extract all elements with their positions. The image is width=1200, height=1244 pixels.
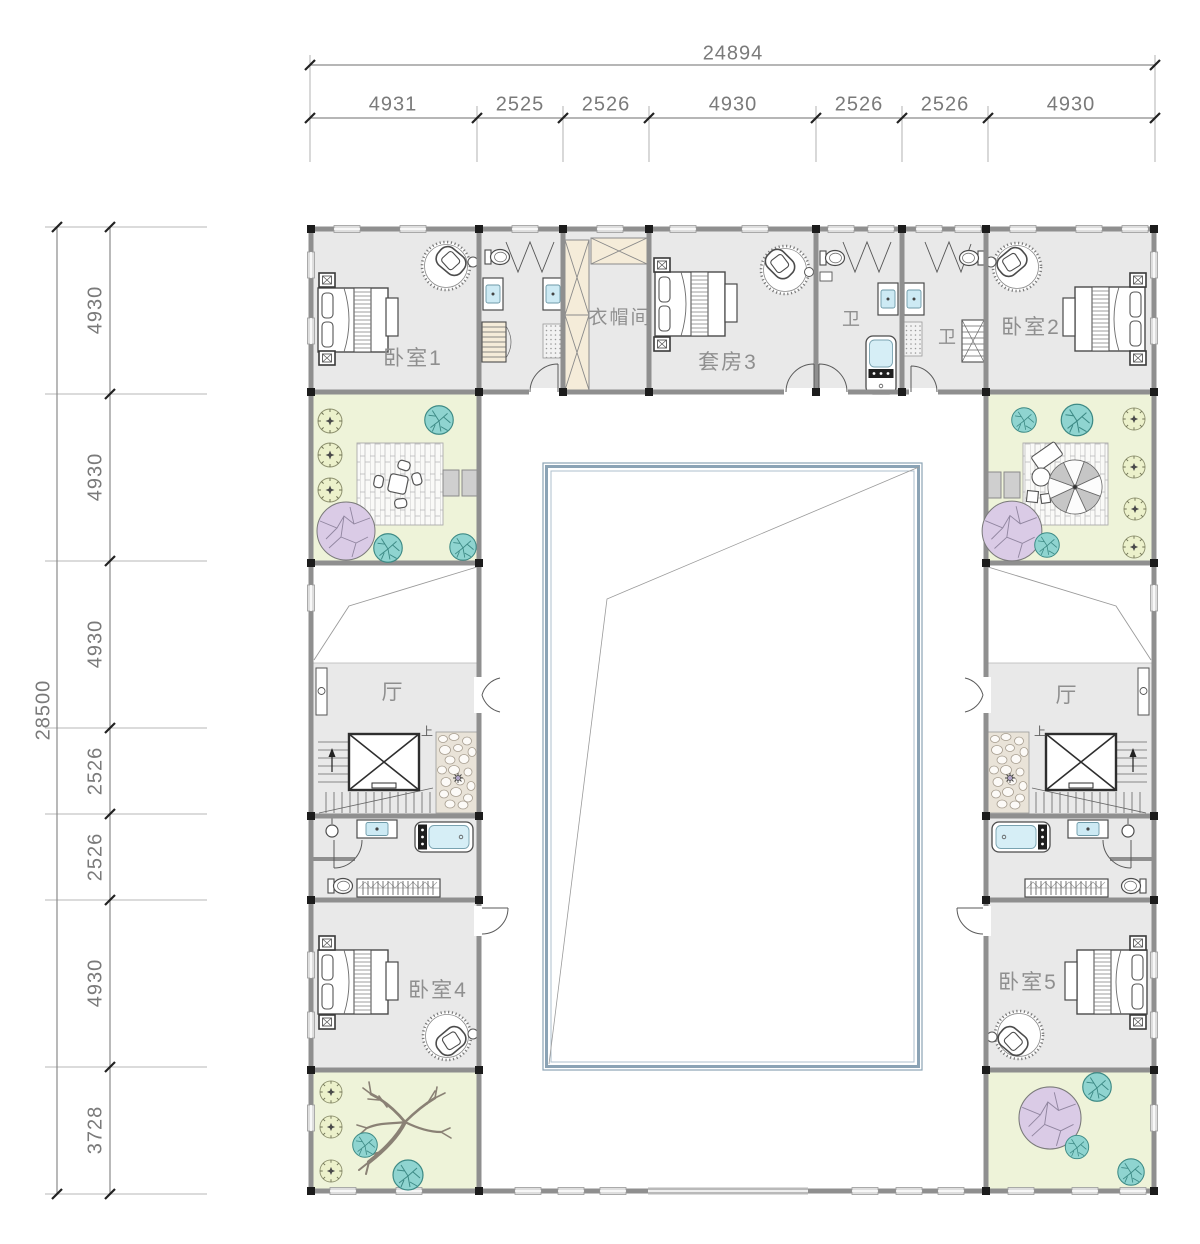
- nightstand: [319, 273, 335, 287]
- bathtub: [415, 822, 473, 852]
- room-label-hall-left: 厅: [382, 676, 405, 706]
- toilet: [820, 251, 845, 266]
- dim-top-seg-6: 2526: [921, 94, 970, 117]
- wardrobe-hangers: [1025, 879, 1108, 897]
- wall-shelf: [820, 272, 832, 281]
- room-label-bath1: 卫: [842, 305, 860, 331]
- bathtub: [992, 822, 1050, 852]
- double-bed: [655, 272, 725, 336]
- dim-left-seg-4: 2526: [85, 747, 108, 796]
- bed-bench: [386, 962, 398, 1000]
- nightstand: [1130, 273, 1146, 287]
- wardrobe-hangers: [357, 879, 440, 897]
- bathtub: [866, 336, 896, 394]
- bed-bench: [386, 298, 398, 336]
- room-label-bedroom2: 卧室2: [1001, 311, 1061, 341]
- sink: [878, 283, 898, 315]
- courtyard-pool: [543, 463, 922, 1070]
- sink: [904, 283, 924, 315]
- dim-left-seg-1: 4930: [85, 286, 108, 335]
- sink: [543, 278, 563, 310]
- dim-top-total: 24894: [703, 43, 764, 66]
- nightstand: [1130, 1015, 1146, 1029]
- dim-left-seg-6: 4930: [85, 959, 108, 1008]
- side-table: [805, 268, 814, 277]
- dim-left-seg-7: 3728: [85, 1106, 108, 1155]
- shower-drain: [326, 825, 338, 837]
- nightstand: [319, 936, 335, 950]
- double-bed: [1077, 950, 1147, 1014]
- dim-top-seg-5: 2526: [835, 94, 884, 117]
- room-label-cloakroom: 衣帽间: [588, 303, 651, 330]
- room-label-bedroom4: 卧室4: [408, 974, 468, 1004]
- sink: [483, 278, 503, 310]
- dim-top-seg-7: 4930: [1047, 94, 1096, 117]
- nightstand: [1130, 351, 1146, 365]
- nightstand: [654, 337, 670, 351]
- toilet: [1122, 879, 1147, 894]
- dim-top-seg-3: 2526: [582, 94, 631, 117]
- bed-bench: [1065, 962, 1077, 1000]
- sink: [357, 820, 397, 838]
- room-label-bedroom1: 卧室1: [383, 342, 443, 372]
- stair-up-label-right: 上: [1034, 723, 1046, 740]
- room-label-hall-right: 厅: [1056, 679, 1079, 709]
- toilet: [328, 879, 353, 894]
- planter-box: [1004, 472, 1020, 498]
- shower-drain: [1122, 825, 1134, 837]
- dim-left-total: 28500: [33, 680, 56, 741]
- room-label-suite3: 套房3: [698, 346, 758, 376]
- dim-top-seg-2: 2525: [496, 94, 545, 117]
- bed-bench: [725, 284, 737, 322]
- pebble-garden: [988, 732, 1029, 813]
- floor-plan-drawing: [0, 0, 1200, 1244]
- dim-left-seg-2: 4930: [85, 453, 108, 502]
- dim-top-seg-4: 4930: [709, 94, 758, 117]
- nightstand: [654, 258, 670, 272]
- nightstand: [319, 1015, 335, 1029]
- double-bed: [318, 950, 388, 1014]
- dim-left-seg-3: 4930: [85, 620, 108, 669]
- pebble-garden: [436, 732, 477, 813]
- stair-up-label-left: 上: [421, 723, 433, 740]
- bed-bench: [1063, 298, 1075, 336]
- room-label-bedroom5: 卧室5: [998, 966, 1058, 996]
- dim-left-seg-5: 2526: [85, 833, 108, 882]
- dim-top-seg-1: 4931: [369, 94, 418, 117]
- nightstand: [1130, 936, 1146, 950]
- room-label-bath2: 卫: [938, 323, 956, 349]
- nightstand: [319, 351, 335, 365]
- double-bed: [318, 288, 388, 352]
- toilet: [960, 251, 985, 266]
- floor-plan-canvas: 24894 4931 2525 2526 4930 2526 2526 4930…: [0, 0, 1200, 1244]
- toilet: [485, 250, 510, 265]
- double-bed: [1075, 287, 1145, 351]
- planter-box: [443, 470, 459, 496]
- sink: [1068, 820, 1108, 838]
- planter-box: [462, 470, 478, 496]
